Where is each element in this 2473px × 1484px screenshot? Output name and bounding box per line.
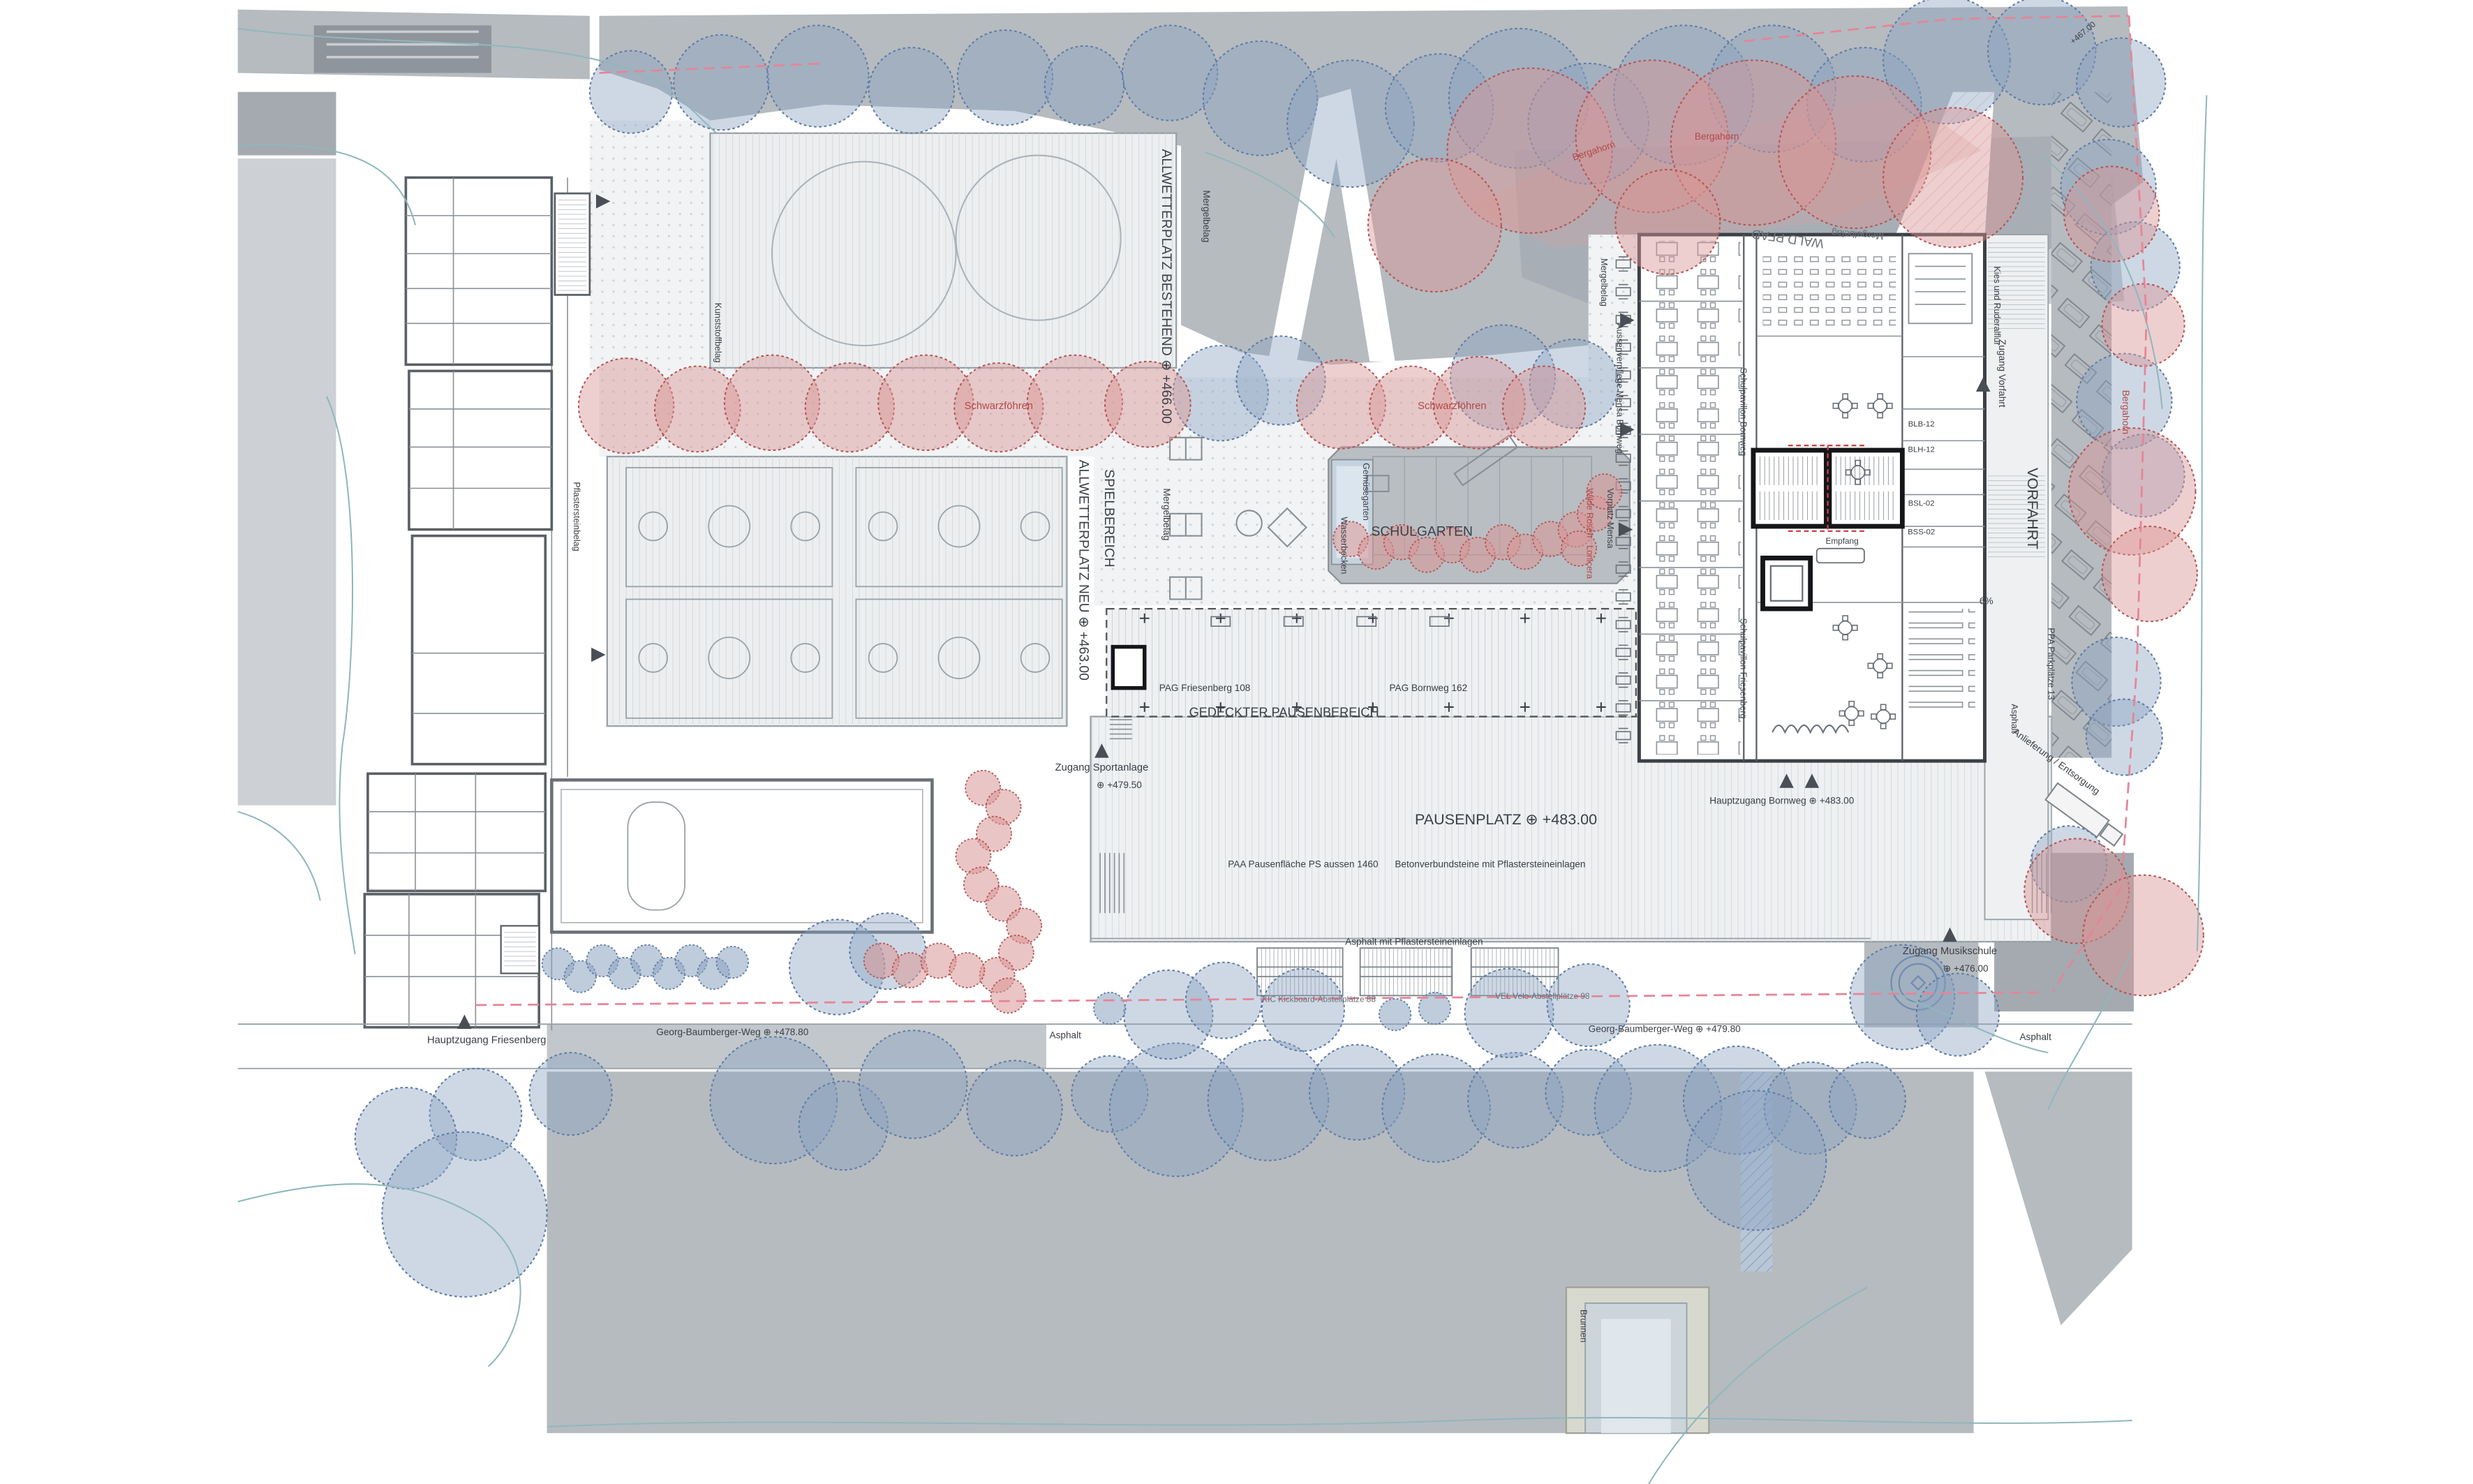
classroom-desks bbox=[1644, 241, 1741, 755]
plan-label: SCHULGARTEN bbox=[1371, 525, 1472, 540]
plan-label: Zugang Sportanlage bbox=[1055, 762, 1149, 773]
plan-label: GEDECKTER PAUSENBEREICH bbox=[1189, 706, 1379, 720]
plan-label: Schulpavillon Bornweg bbox=[1739, 368, 1748, 456]
gym-hall bbox=[551, 780, 932, 932]
plan-label: ALLWETTERPLATZ BESTEHEND ⊕ +466.00 bbox=[1159, 149, 1173, 423]
new-tree bbox=[1883, 107, 2023, 247]
existing-tree bbox=[1122, 25, 1217, 120]
plan-label: Brunnen bbox=[1578, 1309, 1588, 1342]
existing-tree bbox=[859, 1030, 967, 1138]
existing-tree bbox=[2086, 699, 2162, 776]
music-room-seats bbox=[1763, 251, 1896, 327]
plan-label: BLB-12 bbox=[1908, 420, 1935, 429]
existing-tree bbox=[530, 1053, 612, 1135]
shrub-blue bbox=[1379, 999, 1411, 1030]
existing-tree bbox=[1262, 969, 1344, 1051]
shrub-red bbox=[949, 953, 984, 988]
entrance-arrow bbox=[591, 648, 605, 662]
plan-label: Hauptzugang Friesenberg bbox=[427, 1034, 547, 1046]
plan-label: ⊕ +476.00 bbox=[1943, 963, 1989, 974]
plan-label: Georg-Baumberger-Weg ⊕ +479.80 bbox=[1589, 1024, 1741, 1034]
existing-tree bbox=[1045, 46, 1124, 126]
plan-label: Hauptzugang Bornweg ⊕ +483.00 bbox=[1709, 795, 1854, 806]
plan-label: Kunststoffbelag bbox=[713, 303, 722, 363]
new-tree bbox=[2083, 875, 2204, 996]
existing-tree bbox=[1465, 969, 1554, 1058]
plan-label: Pflastersteinbelag bbox=[572, 482, 581, 551]
plan-label: VORFAHRT bbox=[2024, 468, 2042, 549]
plan-label: Zugang Musikschule bbox=[1903, 946, 1997, 957]
plan-label: PAA Pausenfläche PS aussen 1460 bbox=[1228, 859, 1379, 869]
plan-label: Asphalt mit Pflastersteineinlagen bbox=[1345, 937, 1483, 947]
new-tree bbox=[1503, 366, 1585, 449]
new-tree bbox=[1615, 170, 1720, 274]
plan-label: VEL Velo-Abstellplätze 98 bbox=[1495, 991, 1590, 1001]
existing-tree bbox=[958, 30, 1053, 125]
plan-label: Lonicera bbox=[1584, 545, 1594, 579]
existing-tree bbox=[1829, 1062, 1906, 1138]
plan-label: Schulpavillon Friesenberg bbox=[1739, 618, 1748, 719]
plan-label: Gemüsegarten bbox=[1361, 463, 1371, 521]
plan-label: Mergelbelag bbox=[1161, 489, 1172, 541]
new-tree bbox=[2064, 166, 2159, 261]
plan-label: ALLWETTERPLATZ NEU ⊕ +463.00 bbox=[1076, 460, 1091, 681]
plan-label: PPA Parkplätze 13 bbox=[2046, 628, 2056, 699]
plan-label: Asphalt bbox=[1050, 1030, 1082, 1041]
mensa-shelves bbox=[1908, 609, 1975, 710]
reception-desk bbox=[1817, 549, 1864, 563]
new-tree bbox=[2102, 526, 2197, 621]
existing-tree bbox=[1917, 973, 1999, 1055]
plan-label: Vorplatz Mensa bbox=[1605, 489, 1615, 549]
site-plan: ALLWETTERPLATZ BESTEHEND ⊕ +466.00Mergel… bbox=[0, 0, 2473, 1484]
plan-label: Zugang Vorfahrt bbox=[1997, 339, 2007, 408]
plan-label: Betonverbundsteine mit Pflastersteineinl… bbox=[1395, 859, 1585, 869]
plan-label: BLH-12 bbox=[1908, 445, 1934, 454]
existing-tree bbox=[382, 1132, 547, 1297]
plan-label: Mergelbelag bbox=[1201, 191, 1212, 243]
plan-label: Kies und Ruderalflur bbox=[1992, 267, 2002, 346]
plan-label: Schwarzföhren bbox=[965, 401, 1033, 412]
plan-label: PAG Friesenberg 108 bbox=[1159, 683, 1251, 693]
new-tree bbox=[1105, 362, 1191, 447]
plan-label: ⊕ +479.50 bbox=[1097, 780, 1142, 790]
shrub-blue bbox=[1094, 993, 1125, 1024]
plan-label: Schwarzföhren bbox=[1418, 401, 1486, 412]
existing-tree bbox=[767, 25, 868, 126]
existing-tree bbox=[1687, 1091, 1827, 1231]
plan-label: Wasserbecken bbox=[1339, 517, 1349, 574]
plan-label: KIC Kickboard-Abstellplätze 88 bbox=[1262, 994, 1376, 1004]
plan-label: Empfang bbox=[1825, 536, 1858, 546]
shrub-blue bbox=[717, 947, 748, 978]
plan-label: PAG Bornweg 162 bbox=[1389, 683, 1467, 693]
plan-label: Aussenverpflege Mensa Bornweg bbox=[1615, 323, 1625, 454]
existing-tree bbox=[869, 47, 955, 133]
existing-tree bbox=[590, 51, 672, 133]
plan-label: PAUSENPLATZ ⊕ +483.00 bbox=[1415, 810, 1597, 828]
existing-tree bbox=[967, 1060, 1062, 1155]
plan-label: 6% bbox=[1980, 595, 1993, 606]
existing-tree bbox=[2077, 38, 2165, 127]
plan-label: Georg-Baumberger-Weg ⊕ +478.80 bbox=[656, 1027, 808, 1037]
plan-label: Mergelbelag bbox=[1599, 258, 1609, 306]
plan-label: BSL-02 bbox=[1908, 499, 1935, 507]
shrub-red bbox=[990, 978, 1025, 1013]
plan-label: Bergahorn bbox=[1695, 131, 1739, 142]
plan-label: Wilde Rosen bbox=[1584, 489, 1594, 538]
new-tree bbox=[1368, 158, 1501, 292]
plan-label: BSS-02 bbox=[1908, 528, 1935, 536]
plan-label: Bergahorn bbox=[2121, 390, 2131, 435]
plan-label: Asphalt bbox=[2019, 1032, 2051, 1042]
new-tree bbox=[2102, 284, 2185, 366]
plan-label: SPIELBEREICH bbox=[1101, 469, 1116, 567]
existing-tree bbox=[674, 35, 768, 130]
